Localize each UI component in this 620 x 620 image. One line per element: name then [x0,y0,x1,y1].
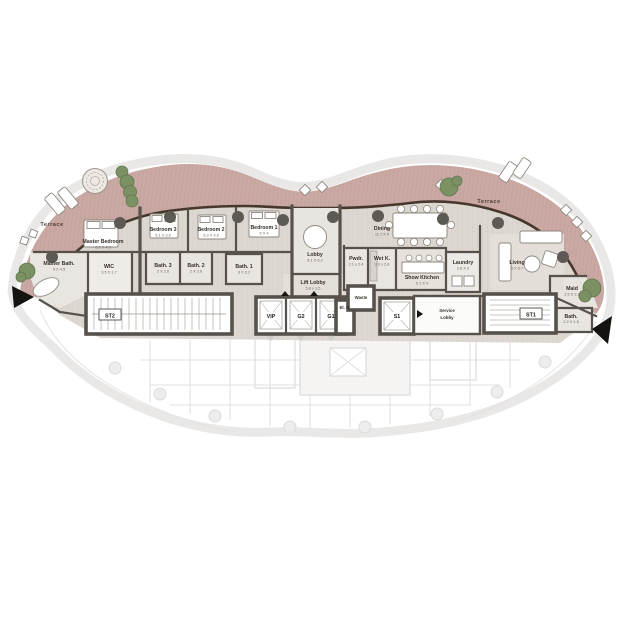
svg-text:6.1 X 6.2: 6.1 X 6.2 [307,258,323,263]
svg-text:2.8 X 2: 2.8 X 2 [457,266,469,271]
label-service-lobby-1: Service [439,308,455,313]
svg-text:6.2 X 4.5: 6.2 X 4.5 [95,245,111,250]
svg-text:5.8 x 1.5: 5.8 x 1.5 [306,286,321,291]
svg-text:5 X 4: 5 X 4 [259,231,269,236]
label-lift-s1: S1 [394,314,401,320]
svg-text:4 X 4.5: 4 X 4.5 [53,267,65,272]
svg-text:5.1 X 4: 5.1 X 4 [416,281,429,286]
label-service-lobby-2: Lobby [440,315,454,320]
svg-text:2.1 x 2.4: 2.1 x 2.4 [349,262,365,267]
svg-text:6 X 6.7: 6 X 6.7 [511,266,523,271]
label-lift-g1: G1 [327,314,334,320]
stair-st1 [484,294,556,333]
label-electrical: El. R. [340,305,351,310]
svg-text:2 X 2.6: 2 X 2.6 [157,269,169,274]
svg-text:2.5 X 2.2: 2.5 X 2.2 [564,292,580,297]
label-terrace-right: Terrace [477,199,500,205]
label-terrace-left: Terrace [40,222,63,228]
svg-text:3.3 x 2.8: 3.3 x 2.8 [375,262,390,267]
label-stair-st2: ST2 [105,314,115,320]
svg-text:2 X 2.6: 2 X 2.6 [190,269,202,274]
label-stair-st1: ST1 [526,313,536,319]
svg-text:2.2 X 1.5: 2.2 X 1.5 [563,319,579,324]
floor-plan-canvas: Terrace Terrace Master Bedroom 6.2 X 4.5… [0,0,620,620]
svg-text:3.5 X 1.7: 3.5 X 1.7 [101,270,117,275]
floor-plan-svg: Terrace Terrace Master Bedroom 6.2 X 4.5… [0,0,620,620]
svg-text:3 X 2.2: 3 X 2.2 [238,270,250,275]
label-waste: Waste [355,295,368,300]
svg-text:5.1 X 3.6: 5.1 X 3.6 [155,233,171,238]
label-lift-g2: G2 [297,314,304,320]
label-lift-vip: VIP [267,314,276,320]
svg-text:5.3 X 3.6: 5.3 X 3.6 [203,233,219,238]
svg-text:11.7 X 4: 11.7 X 4 [375,232,390,237]
